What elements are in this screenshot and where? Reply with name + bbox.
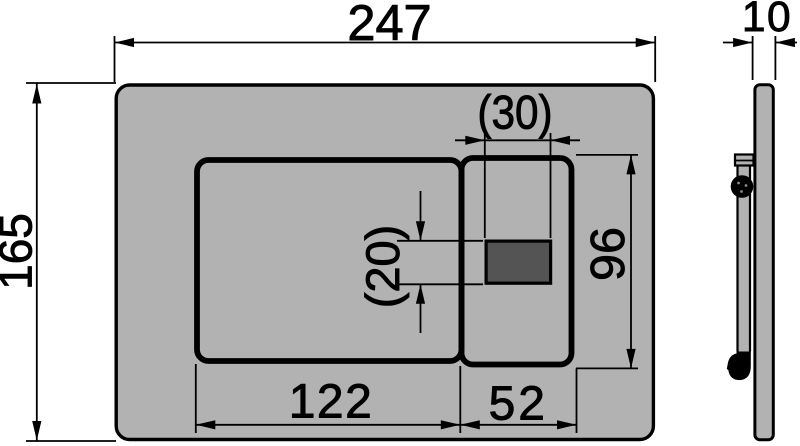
svg-text:122: 122 xyxy=(289,376,374,429)
svg-text:165: 165 xyxy=(0,213,42,290)
svg-text:(20): (20) xyxy=(356,225,409,309)
svg-text:96: 96 xyxy=(581,227,635,281)
svg-text:(30): (30) xyxy=(477,88,552,140)
svg-text:10: 10 xyxy=(742,0,792,41)
svg-text:52: 52 xyxy=(489,378,548,431)
svg-text:247: 247 xyxy=(347,0,431,51)
